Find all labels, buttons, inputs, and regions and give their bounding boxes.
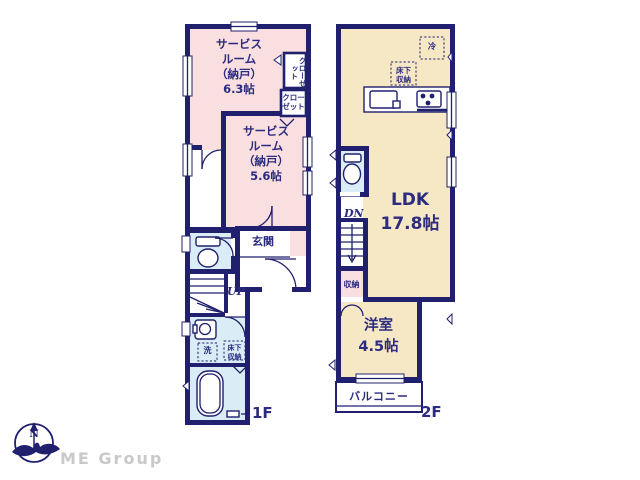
- toilet-icon-1f: [196, 237, 220, 267]
- logo-text: ME Group: [60, 449, 163, 470]
- toilet-room-2f: [336, 146, 369, 197]
- floor-label-2f: 2F: [421, 403, 442, 423]
- toilet-icon-2f: [344, 154, 362, 184]
- washbasin-icon: [193, 320, 216, 339]
- closet-small-label: クロー ゼット: [281, 93, 306, 112]
- stairs-up-label: UP: [227, 285, 245, 299]
- floorplan-drawing: N: [0, 0, 640, 480]
- refrigerator-label: 冷: [420, 42, 444, 52]
- balcony-label: バルコニー: [338, 390, 420, 404]
- service-room-1-label: サービス ルーム （納戸） 6.3帖: [195, 37, 283, 97]
- entrance-label: 玄関: [243, 235, 283, 249]
- floor-label-1f: 1F: [252, 404, 273, 424]
- closet-tall-label: クローゼット: [288, 56, 306, 88]
- compass-north-label: N: [29, 428, 39, 440]
- service-room-2-label: サービス ルーム （納戸） 5.6帖: [226, 124, 306, 184]
- compass-icon: N: [12, 422, 60, 462]
- western-room-label: 洋室 4.5帖: [342, 316, 415, 358]
- underfloor-storage-label-1f: 床下 収納: [222, 344, 247, 362]
- kitchen-counter-icon: [364, 87, 450, 112]
- underfloor-storage-label-2f: 床下 収納: [390, 66, 417, 85]
- stairs-down-label: DN: [344, 207, 364, 221]
- sink-icon: [370, 91, 400, 108]
- laundry-label: 洗: [199, 346, 216, 356]
- floorplan-canvas: N サービス ルーム （納戸） 6.3帖 クローゼット クロー ゼット サービス…: [0, 0, 640, 480]
- storage-label: 収納: [337, 280, 366, 290]
- ldk-label: LDK 17.8帖: [371, 189, 449, 237]
